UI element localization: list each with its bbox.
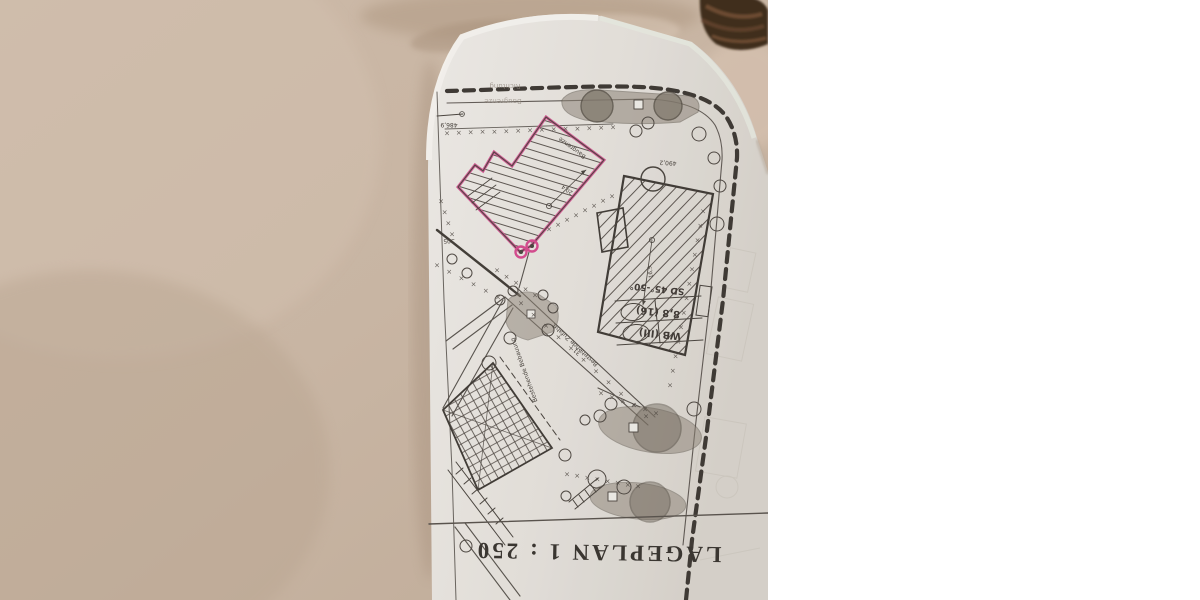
site-plan-scene: ××××××××××××××××××××××××××××××××××××××××… bbox=[0, 0, 768, 600]
photo-of-site-plan: ××××××××××××××××××××××××××××××××××××××××… bbox=[0, 0, 768, 600]
paper-shading bbox=[428, 14, 768, 600]
screenshot-canvas: ××××××××××××××××××××××××××××××××××××××××… bbox=[0, 0, 1200, 600]
